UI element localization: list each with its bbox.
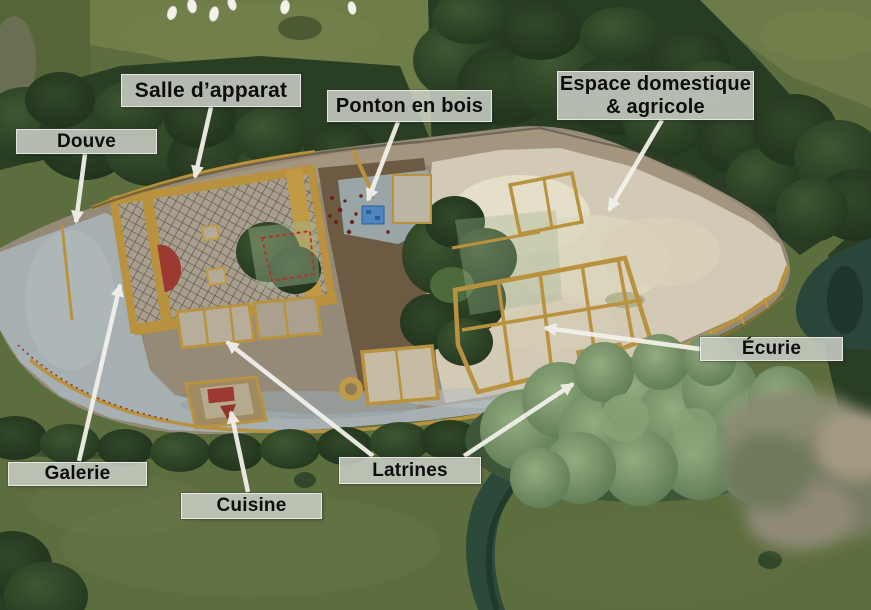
- label-ecurie: Écurie: [700, 337, 843, 361]
- cuisine-building: [186, 377, 266, 428]
- label-douve: Douve: [16, 129, 157, 154]
- label-espace-domestique-agricole: Espace domestique & agricole: [557, 71, 754, 120]
- label-galerie: Galerie: [8, 462, 147, 486]
- label-latrines: Latrines: [339, 457, 481, 484]
- label-cuisine: Cuisine: [181, 493, 322, 519]
- annotated-aerial-view: Douve Salle d’apparat Ponton en bois Esp…: [0, 0, 871, 610]
- label-ponton-en-bois: Ponton en bois: [327, 90, 492, 122]
- label-salle-apparat: Salle d’apparat: [121, 74, 301, 107]
